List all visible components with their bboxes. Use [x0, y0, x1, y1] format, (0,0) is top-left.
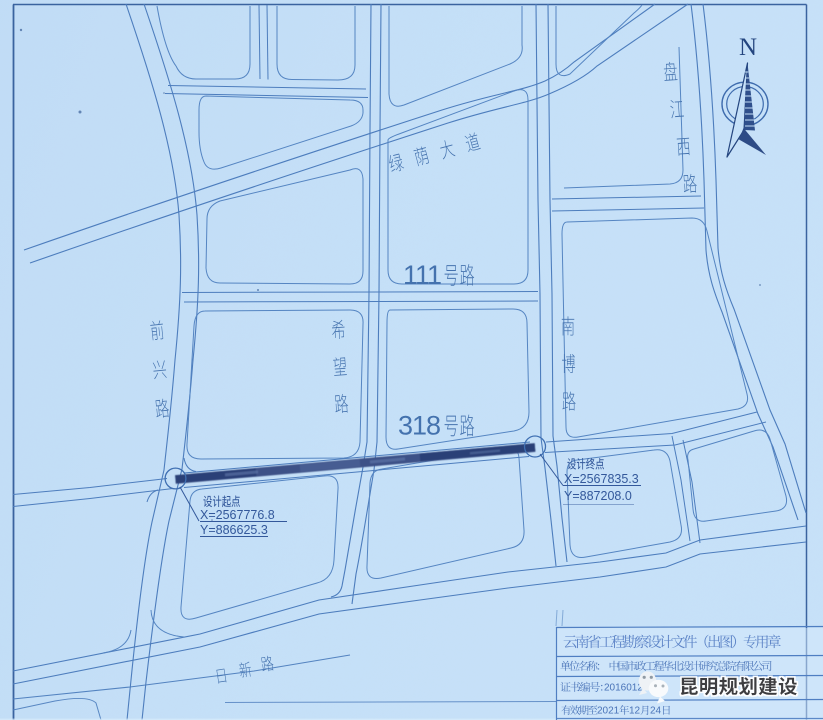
- svg-text:Y=886625.3: Y=886625.3: [200, 523, 268, 537]
- svg-text:X=2567835.3: X=2567835.3: [564, 472, 639, 486]
- svg-text:24: 24: [650, 706, 662, 717]
- svg-text:12: 12: [629, 706, 641, 717]
- svg-text:111: 111: [403, 260, 441, 290]
- svg-text:Y=887208.0: Y=887208.0: [564, 489, 632, 503]
- svg-text:2016012: 2016012: [604, 683, 643, 694]
- svg-text:318: 318: [398, 411, 440, 441]
- svg-text:N: N: [739, 34, 757, 61]
- svg-text:2021: 2021: [597, 706, 620, 717]
